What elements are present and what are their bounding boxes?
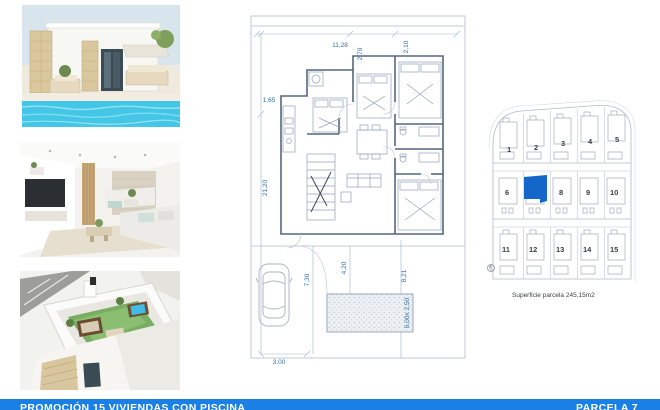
dim-yard-left: 7,30 — [304, 273, 311, 286]
footer-bar: PROMOCIÓN 15 VIVIENDAS CON PISCINA PARCE… — [0, 399, 660, 410]
plot-label: 12 — [529, 245, 537, 254]
stairs — [307, 154, 335, 220]
bathroom-fixtures — [400, 127, 439, 162]
dim-bottom-left: 3,00 — [273, 359, 286, 366]
living-room-illustration — [20, 143, 180, 257]
dim-yard-right: 8,21 — [401, 269, 408, 282]
photo-rooftop-terrace — [20, 271, 180, 390]
dim-yard-mid: 4,20 — [341, 261, 348, 274]
dim-total-length: 21,20 — [262, 179, 269, 196]
plot-label: 10 — [610, 188, 618, 197]
plot-label: 5 — [615, 135, 619, 144]
plot-area-caption: Superficie parcela 245,15m2 — [512, 292, 595, 299]
highlighted-plot-7 — [524, 175, 547, 203]
photo-villa-pool-exterior — [22, 5, 180, 127]
plot-numbers: 1 2 3 4 5 6 7 8 9 10 11 12 13 14 15 — [502, 135, 619, 254]
plot-label: 2 — [534, 143, 538, 152]
plot-label: 9 — [586, 188, 590, 197]
site-plan: 1 2 3 4 5 6 7 8 9 10 11 12 13 14 15 — [487, 100, 637, 285]
dim-pool-size: 6,00x 2,50 — [404, 297, 411, 328]
plot-label: 4 — [588, 137, 593, 146]
dim-total-width: 11,28 — [332, 42, 348, 49]
yard — [251, 246, 465, 332]
dim-top-right: 2,10 — [403, 40, 410, 53]
brochure-page: 11,28 2,70 2,10 1,65 21,20 7,30 4,20 8,2… — [0, 0, 660, 410]
floor-plan: 11,28 2,70 2,10 1,65 21,20 7,30 4,20 8,2… — [243, 6, 471, 372]
footer-promo-title: PROMOCIÓN 15 VIVIENDAS CON PISCINA — [20, 402, 245, 410]
dim-left-small: 1,65 — [263, 97, 276, 104]
bedroom-furniture — [313, 62, 441, 230]
car — [256, 264, 292, 326]
compass-icon — [488, 265, 495, 272]
living-dining-furniture — [341, 125, 387, 202]
villa-pool-illustration — [22, 5, 180, 127]
kitchen — [283, 72, 323, 152]
plot-label: 3 — [561, 139, 565, 148]
pool — [327, 294, 413, 332]
footer-parcel-label: PARCELA 7 — [576, 402, 638, 410]
plot-label: 11 — [502, 245, 510, 254]
plot-label: 13 — [556, 245, 564, 254]
dim-top-inner: 2,70 — [357, 47, 364, 60]
plot-label: 14 — [583, 245, 592, 254]
plot-label: 6 — [505, 188, 509, 197]
rooftop-terrace-illustration — [20, 271, 180, 390]
photo-living-room-interior — [20, 143, 180, 257]
plot-label: 1 — [507, 145, 511, 154]
plot-label: 15 — [610, 245, 618, 254]
plot-label: 8 — [559, 188, 563, 197]
